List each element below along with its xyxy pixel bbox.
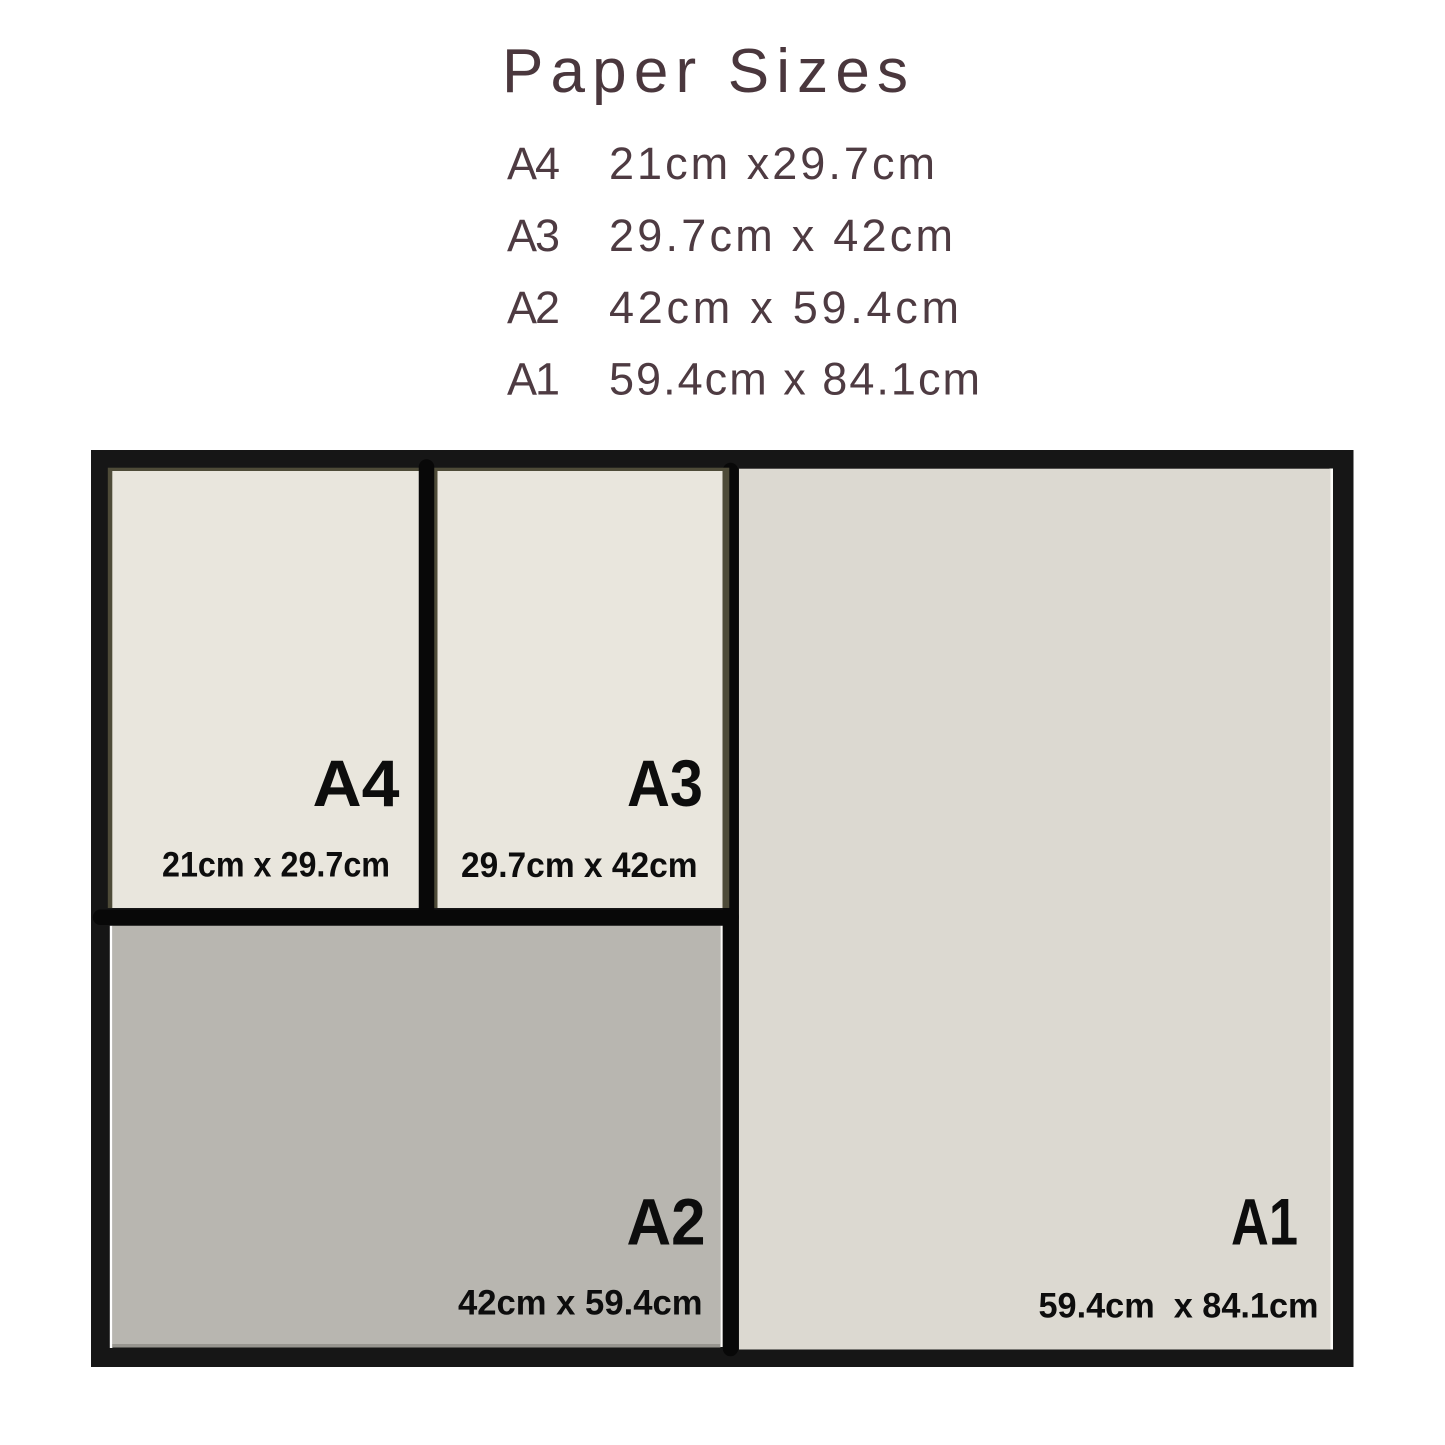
- svg-text:A1: A1: [1231, 1185, 1298, 1259]
- svg-text:A2: A2: [627, 1185, 706, 1259]
- svg-text:21cm x 29.7cm: 21cm x 29.7cm: [162, 846, 390, 885]
- svg-text:Paper Sizes: Paper Sizes: [502, 37, 908, 106]
- svg-text:A4: A4: [507, 138, 560, 189]
- svg-text:A1: A1: [507, 354, 560, 405]
- svg-text:42cm x 59.4cm: 42cm x 59.4cm: [609, 282, 959, 333]
- svg-text:A4: A4: [313, 746, 400, 820]
- svg-text:59.4cm x 84.1cm: 59.4cm x 84.1cm: [609, 354, 980, 405]
- svg-text:A3: A3: [507, 210, 560, 261]
- svg-text:A3: A3: [627, 746, 703, 820]
- svg-text:A2: A2: [507, 282, 560, 333]
- svg-text:59.4cm x 84.1cm: 59.4cm x 84.1cm: [1039, 1287, 1319, 1326]
- svg-text:42cm x 59.4cm: 42cm x 59.4cm: [458, 1284, 703, 1323]
- svg-text:29.7cm x 42cm: 29.7cm x 42cm: [609, 210, 953, 261]
- svg-text:21cm x29.7cm: 21cm x29.7cm: [609, 138, 935, 189]
- svg-text:29.7cm x 42cm: 29.7cm x 42cm: [461, 846, 698, 885]
